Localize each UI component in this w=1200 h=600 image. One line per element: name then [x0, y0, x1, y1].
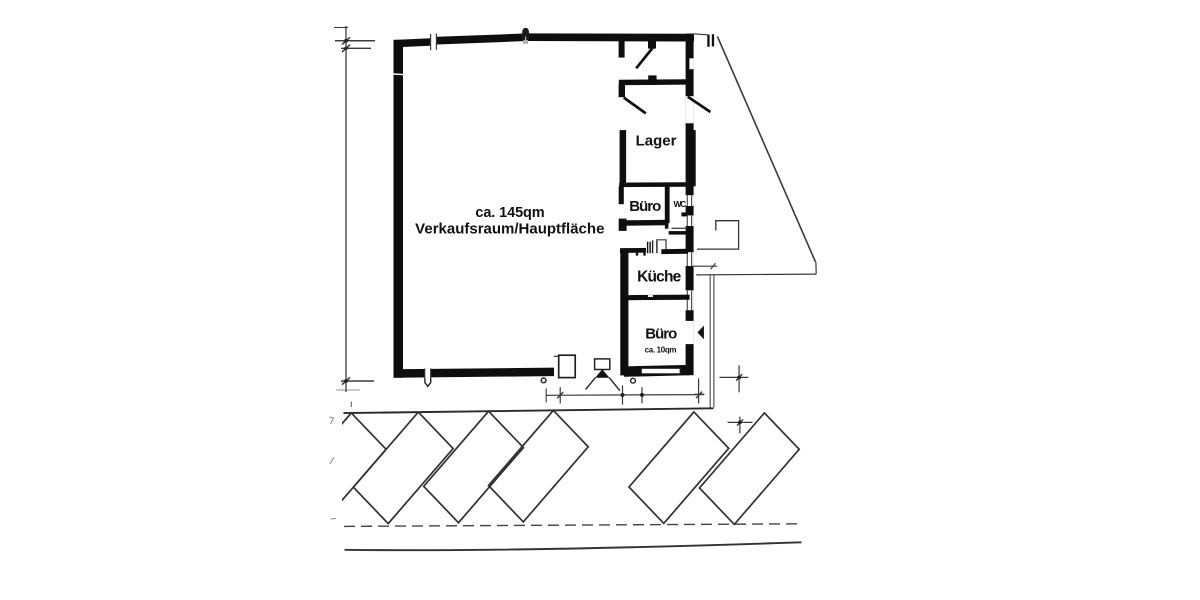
svg-text:ca. 10qm: ca. 10qm — [645, 346, 677, 355]
svg-text:Verkaufsraum/Hauptfläche: Verkaufsraum/Hauptfläche — [415, 220, 604, 237]
svg-text:Lager: Lager — [636, 133, 677, 150]
svg-text:Büro: Büro — [629, 198, 661, 215]
svg-text:WC: WC — [674, 199, 687, 209]
svg-text:Küche: Küche — [637, 269, 682, 286]
svg-text:Büro: Büro — [645, 325, 677, 342]
svg-text:ca. 145qm: ca. 145qm — [475, 205, 544, 221]
